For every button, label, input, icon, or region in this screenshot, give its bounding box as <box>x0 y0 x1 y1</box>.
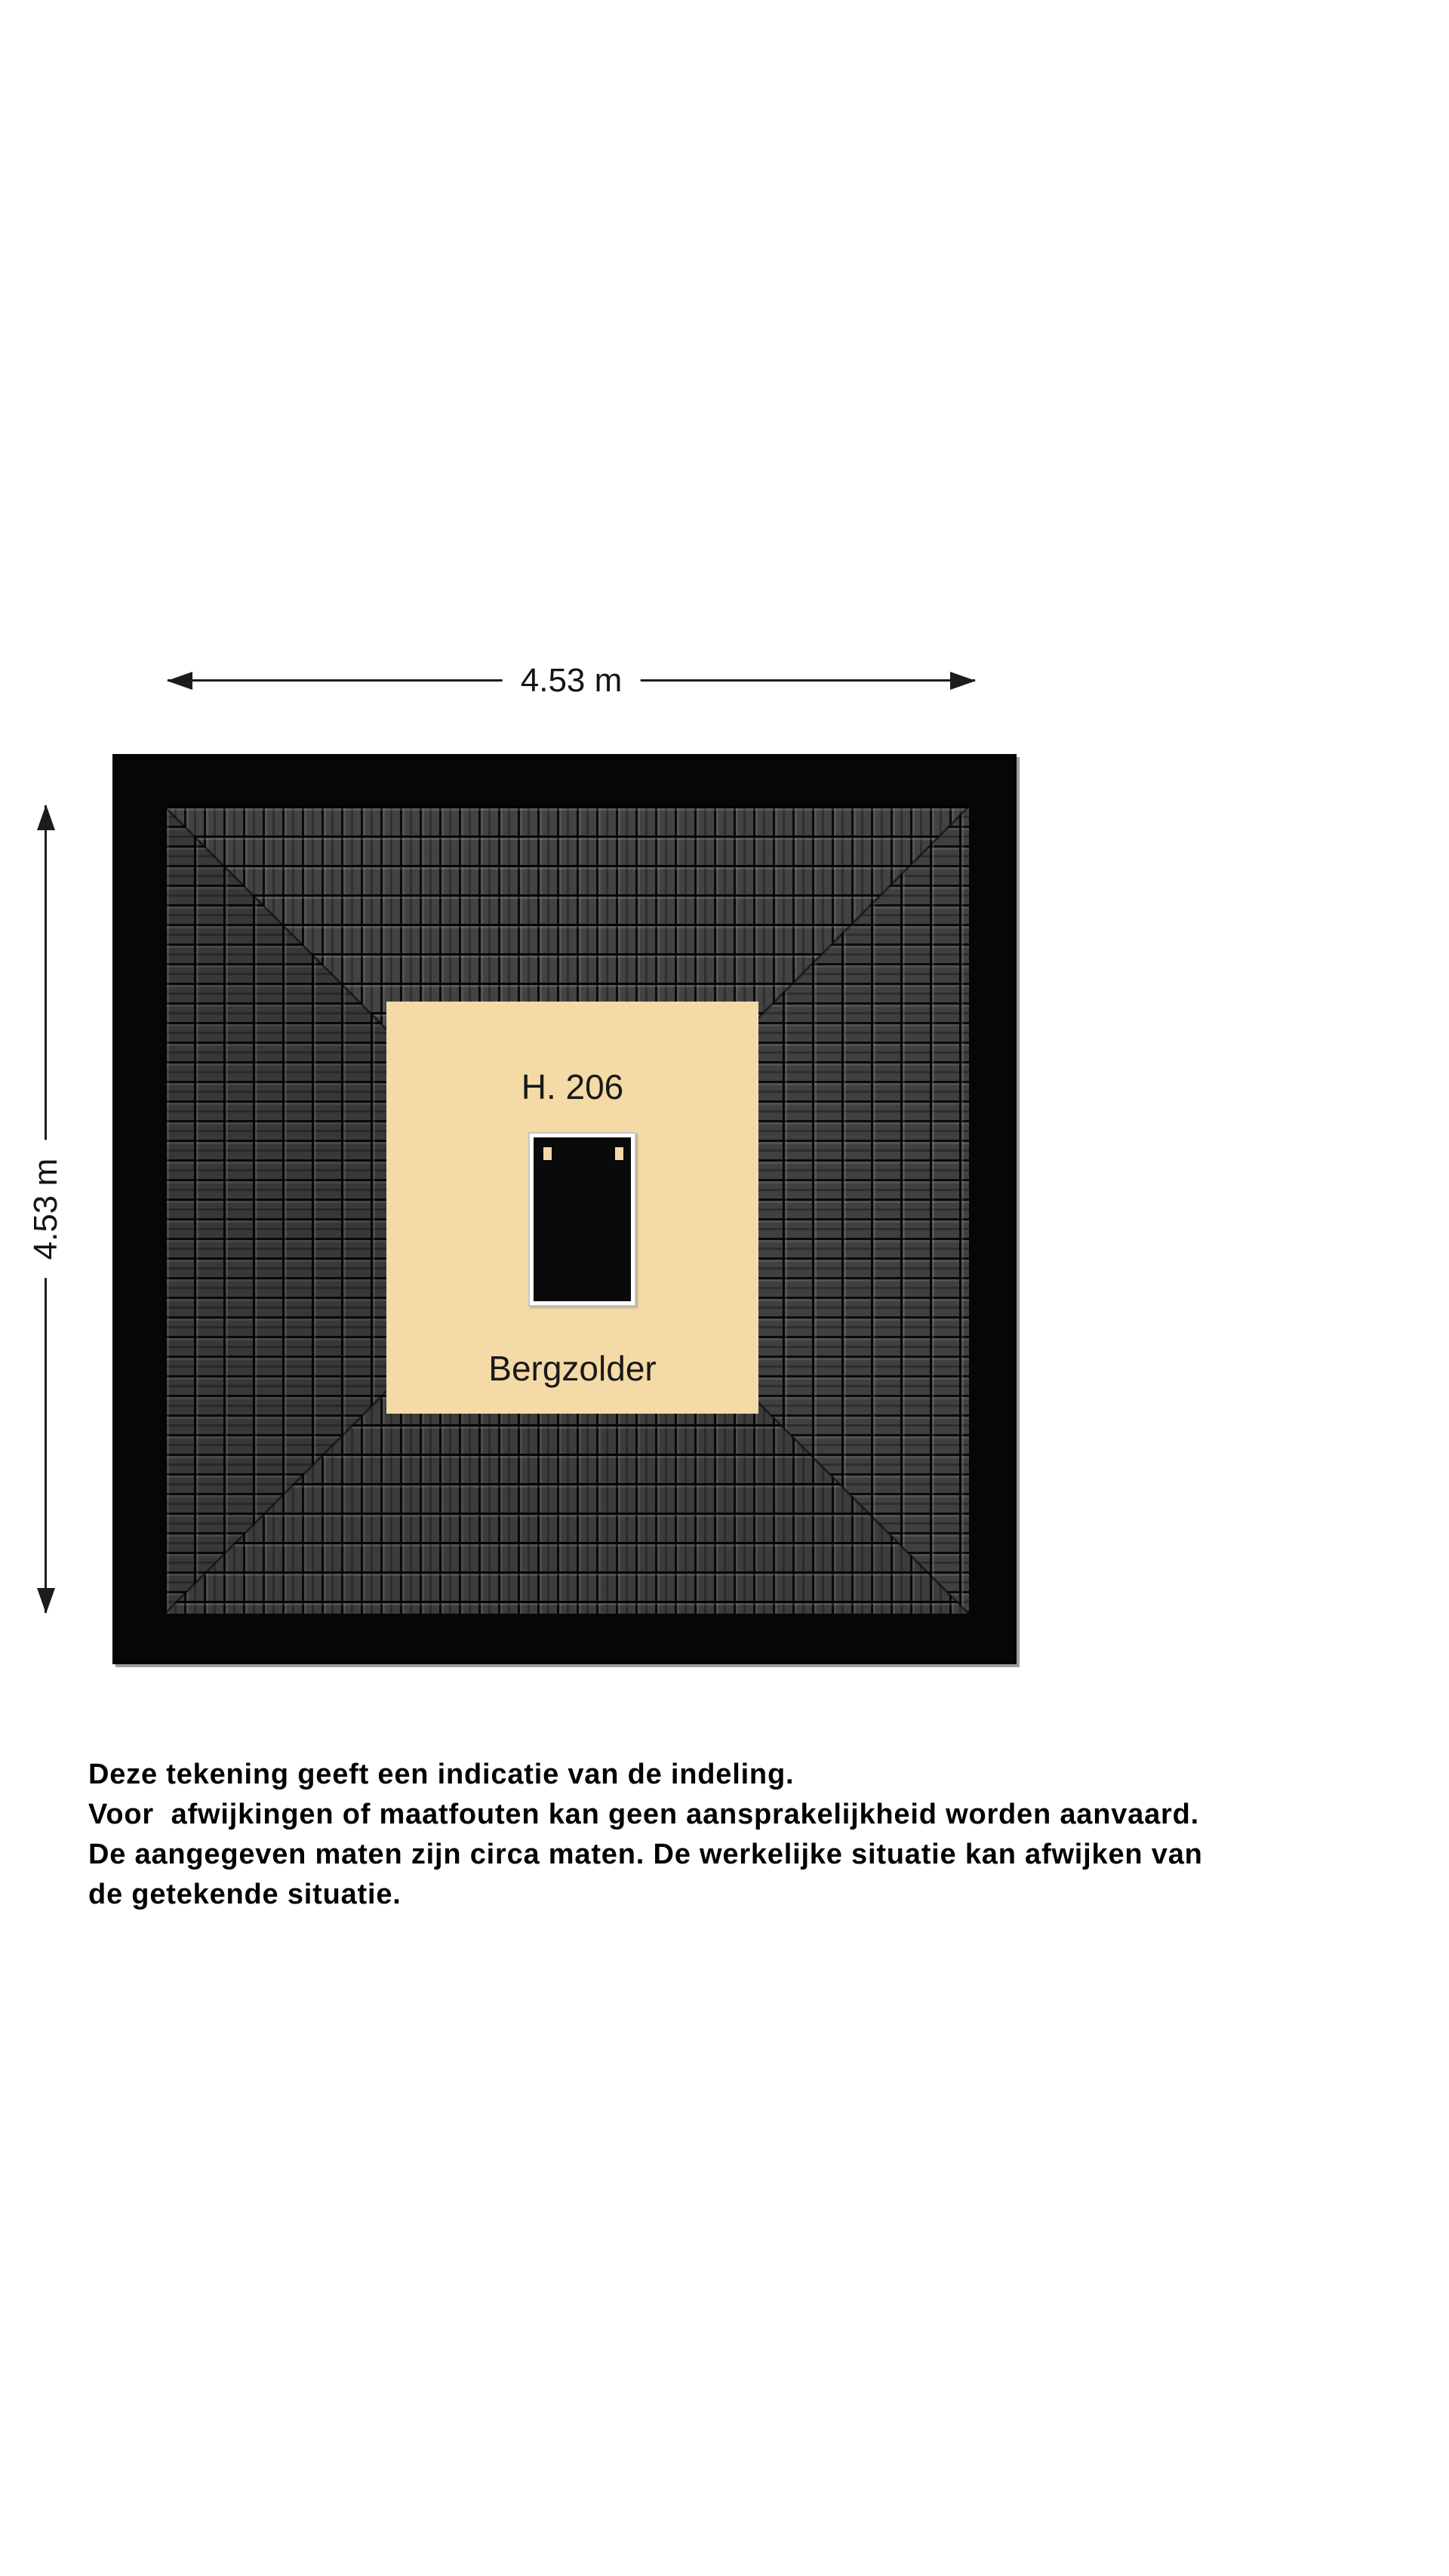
disclaimer-line-3: De aangegeven maten zijn circa maten. De… <box>88 1835 1439 1875</box>
width-dimension-arrow: 4.53 m <box>168 679 975 682</box>
attic-room: H. 206 Bergzolder <box>386 1002 758 1414</box>
disclaimer-text: Deze tekening geeft een indicatie van de… <box>88 1755 1439 1915</box>
height-dimension-label: 4.53 m <box>28 1140 64 1279</box>
disclaimer-line-2: Voor afwijkingen of maatfouten kan geen … <box>88 1795 1439 1835</box>
width-dimension-label: 4.53 m <box>503 663 641 699</box>
stair-opening <box>534 1137 631 1301</box>
height-dimension-arrow: 4.53 m <box>45 805 47 1613</box>
roof-outline: H. 206 Bergzolder <box>112 754 1017 1664</box>
floor-plan-page: 4.53 m 4.53 m H. 206 Bergzolder <box>0 0 1449 2576</box>
stair-post-right <box>615 1147 623 1160</box>
disclaimer-line-4: de getekende situatie. <box>88 1875 1439 1915</box>
room-number-label: H. 206 <box>386 1069 758 1104</box>
disclaimer-line-1: Deze tekening geeft een indicatie van de… <box>88 1755 1439 1795</box>
stair-hatch <box>528 1132 636 1306</box>
room-name-label: Bergzolder <box>386 1351 758 1386</box>
stair-post-left <box>543 1147 552 1160</box>
